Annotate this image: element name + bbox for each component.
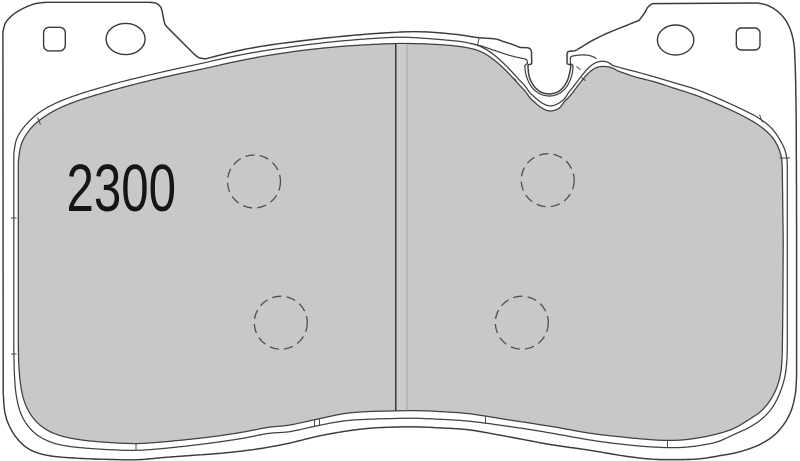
svg-text:2300: 2300 (67, 152, 177, 226)
